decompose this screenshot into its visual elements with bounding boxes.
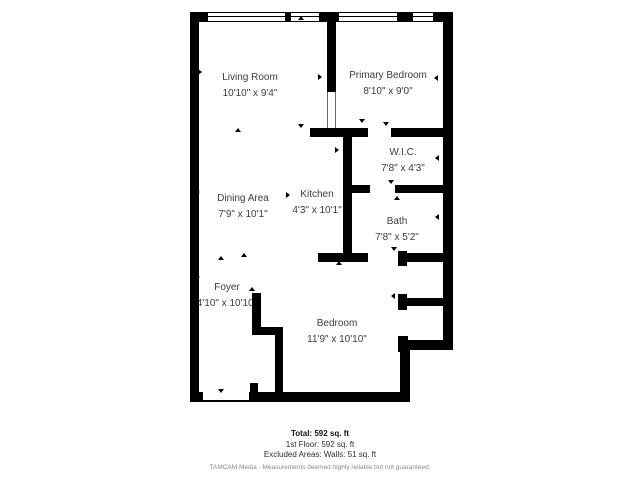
room-dimensions: 11'9" x 10'10" bbox=[307, 332, 367, 348]
arrow-marker-icon bbox=[298, 16, 304, 20]
arrow-marker-icon bbox=[198, 69, 202, 75]
room-dimensions: 7'9" x 10'1" bbox=[217, 207, 269, 223]
room-name: Kitchen bbox=[292, 187, 341, 203]
floor-plan: Living Room 10'10" x 9'4" Primary Bedroo… bbox=[0, 0, 640, 480]
first-floor-text: 1st Floor: 592 sq. ft bbox=[0, 440, 640, 449]
wall-segment bbox=[391, 128, 443, 137]
wall-segment bbox=[398, 294, 407, 310]
room-label-living-room: Living Room 10'10" x 9'4" bbox=[222, 70, 278, 102]
room-label-primary-bedroom: Primary Bedroom 8'10" x 9'0" bbox=[349, 68, 427, 100]
arrow-marker-icon bbox=[335, 147, 339, 153]
arrow-marker-icon bbox=[298, 124, 304, 128]
room-name: Primary Bedroom bbox=[349, 68, 427, 84]
arrow-marker-icon bbox=[434, 75, 438, 81]
room-dimensions: 7'8" x 4'3" bbox=[381, 161, 425, 177]
window bbox=[207, 12, 286, 22]
window bbox=[290, 12, 320, 22]
window bbox=[412, 12, 434, 22]
arrow-marker-icon bbox=[249, 287, 255, 291]
arrow-marker-icon bbox=[218, 256, 224, 260]
wall-segment bbox=[250, 383, 258, 394]
arrow-marker-icon bbox=[394, 196, 400, 200]
room-name: Bedroom bbox=[307, 316, 367, 332]
room-label-bedroom: Bedroom 11'9" x 10'10" bbox=[307, 316, 367, 348]
arrow-marker-icon bbox=[391, 293, 395, 299]
room-label-wic: W.I.C. 7'8" x 4'3" bbox=[381, 145, 425, 177]
room-label-kitchen: Kitchen 4'3" x 10'1" bbox=[292, 187, 341, 219]
room-dimensions: 7'8" x 5'2" bbox=[375, 230, 419, 246]
total-area-text: Total: 592 sq. ft bbox=[0, 429, 640, 438]
wall-segment bbox=[443, 12, 453, 350]
arrow-marker-icon bbox=[388, 180, 394, 184]
wall-segment bbox=[343, 185, 370, 193]
arrow-marker-icon bbox=[196, 274, 200, 280]
disclaimer-text: TAMCAM Media - Measurements deemed highl… bbox=[0, 464, 640, 471]
wall-segment bbox=[252, 327, 283, 335]
wall-segment bbox=[398, 251, 407, 266]
arrow-marker-icon bbox=[241, 253, 247, 257]
arrow-marker-icon bbox=[235, 128, 241, 132]
doorway-opening bbox=[327, 92, 336, 128]
room-dimensions: 10'10" x 9'4" bbox=[222, 86, 278, 102]
wall-segment bbox=[275, 335, 283, 395]
arrow-marker-icon bbox=[196, 189, 200, 195]
room-label-dining-area: Dining Area 7'9" x 10'1" bbox=[217, 191, 269, 223]
room-name: Bath bbox=[375, 214, 419, 230]
entry-door-opening bbox=[203, 392, 249, 400]
room-name: Dining Area bbox=[217, 191, 269, 207]
wall-segment bbox=[310, 128, 368, 137]
window bbox=[338, 12, 398, 22]
room-label-foyer: Foyer 4'10" x 10'10" bbox=[197, 280, 257, 312]
room-name: W.I.C. bbox=[381, 145, 425, 161]
wall-segment bbox=[327, 22, 336, 92]
arrow-marker-icon bbox=[286, 192, 290, 198]
room-name: Living Room bbox=[222, 70, 278, 86]
arrow-marker-icon bbox=[359, 119, 365, 123]
arrow-marker-icon bbox=[318, 74, 322, 80]
arrow-marker-icon bbox=[336, 261, 342, 265]
wall-segment bbox=[400, 350, 410, 395]
arrow-marker-icon bbox=[391, 247, 397, 251]
excluded-areas-text: Excluded Areas: Walls: 51 sq. ft bbox=[0, 450, 640, 459]
room-dimensions: 4'3" x 10'1" bbox=[292, 203, 341, 219]
arrow-marker-icon bbox=[383, 122, 389, 126]
wall-segment bbox=[343, 137, 352, 262]
arrow-marker-icon bbox=[218, 389, 224, 393]
room-label-bath: Bath 7'8" x 5'2" bbox=[375, 214, 419, 246]
arrow-marker-icon bbox=[435, 155, 439, 161]
room-dimensions: 8'10" x 9'0" bbox=[349, 84, 427, 100]
wall-segment bbox=[318, 253, 368, 262]
room-dimensions: 4'10" x 10'10" bbox=[197, 296, 257, 312]
wall-segment bbox=[395, 185, 443, 193]
wall-segment bbox=[398, 336, 408, 352]
arrow-marker-icon bbox=[435, 214, 439, 220]
